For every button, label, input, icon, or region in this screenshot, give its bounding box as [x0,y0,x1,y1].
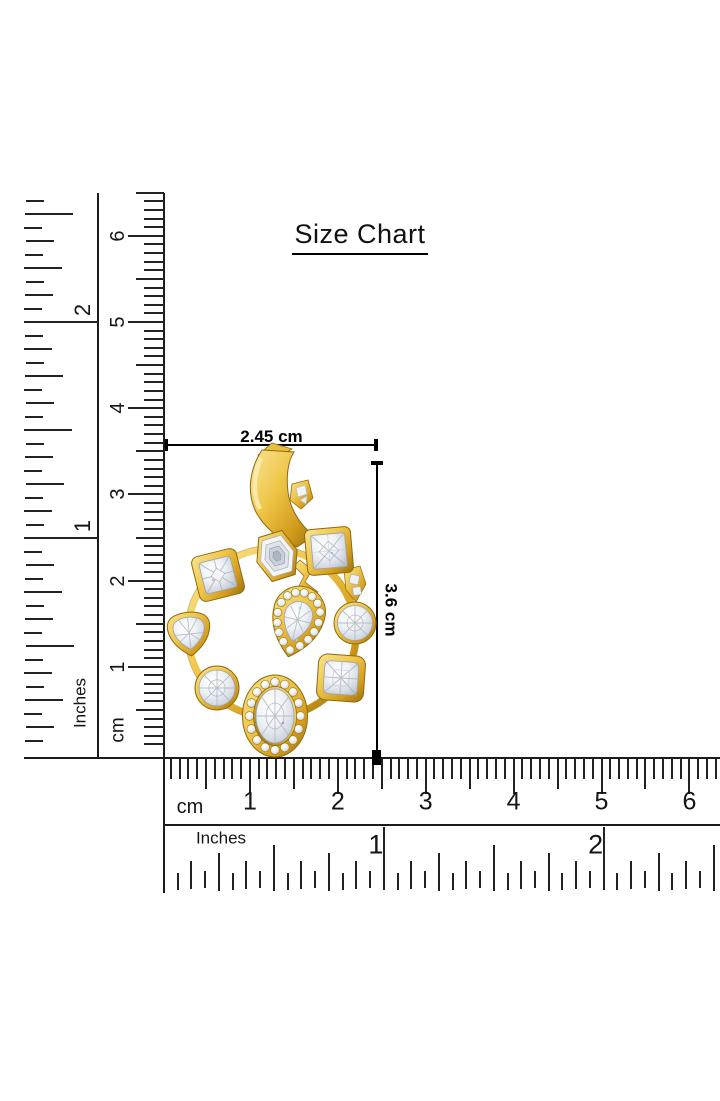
v-cm-number: 5 [108,316,128,327]
h-inches-tick [548,853,550,891]
v-cm-tick [128,321,164,323]
v-inches-tick [26,200,44,202]
h-cm-tick [310,759,312,779]
h-cm-tick [346,759,348,779]
v-cm-tick [144,252,164,254]
h-cm-tick [179,759,181,779]
h-cm-tick [258,759,260,779]
v-cm-tick [144,381,164,383]
v-inches-tick [24,632,42,634]
v-cm-tick [144,338,164,340]
v-cm-tick [144,373,164,375]
h-inches-number: 2 [588,832,603,859]
h-cm-tick [363,759,365,779]
v-cm-tick [144,226,164,228]
h-cm-number: 3 [419,790,433,815]
v-inches-tick [26,483,64,485]
h-inches-tick [452,873,454,890]
v-cm-tick [136,278,164,280]
h-cm-tick [662,759,664,779]
v-inches-tick [24,470,42,472]
v-inches-tick [25,740,43,742]
vertical-ruler-divider-line [97,193,99,758]
h-inches-tick [630,861,632,889]
h-inches-tick [410,861,412,889]
v-cm-number: 4 [108,403,128,414]
v-cm-tick [144,355,164,357]
v-inches-tick [25,659,43,661]
v-inches-tick [25,618,53,620]
h-cm-tick [302,759,304,779]
v-cm-tick [128,235,164,237]
h-cm-tick [574,759,576,779]
stone-pear-halo [263,581,331,663]
h-cm-tick [469,759,471,789]
h-cm-tick [548,759,550,779]
h-cm-tick [521,759,523,779]
h-inches-number: 1 [368,832,383,859]
h-inches-tick [314,871,316,888]
horizontal-cm-unit-label: cm [177,797,204,817]
h-inches-tick [685,861,687,889]
h-cm-tick [275,759,277,779]
h-cm-tick [187,759,189,779]
h-cm-tick [618,759,620,779]
stone-princess-bottom-right [316,653,366,702]
v-inches-tick [26,564,54,566]
h-cm-tick [442,759,444,779]
v-inches-tick [24,267,62,269]
h-cm-tick [715,759,717,779]
h-cm-tick [539,759,541,779]
v-cm-tick [144,424,164,426]
h-cm-tick [196,759,198,779]
h-cm-tick [398,759,400,779]
h-inches-tick [493,845,495,891]
h-cm-tick [530,759,532,779]
h-cm-tick [609,759,611,779]
h-cm-tick [671,759,673,779]
v-inches-tick [24,672,52,674]
h-inches-tick [369,871,371,888]
v-inches-tick [24,429,72,431]
stone-round-right [334,602,376,644]
v-cm-tick [144,347,164,349]
v-inches-number: 2 [72,304,94,316]
v-cm-tick [144,312,164,314]
h-cm-tick [583,759,585,779]
size-chart-image: Size Chart 12 123456 123456 12 Inches cm… [0,0,720,1101]
h-cm-tick [460,759,462,779]
h-inches-tick [397,873,399,890]
v-inches-tick [26,645,74,647]
h-inches-tick [507,873,509,890]
v-inches-tick [26,524,44,526]
v-inches-tick [24,227,42,229]
h-inches-tick [300,861,302,889]
v-cm-tick [144,330,164,332]
h-inches-tick [232,873,234,890]
h-cm-tick [390,759,392,779]
h-cm-tick [293,759,295,789]
h-cm-number: 1 [243,790,257,815]
h-inches-tick [671,873,673,890]
h-inches-tick [342,873,344,890]
h-cm-tick [328,759,330,779]
h-cm-number: 5 [595,790,609,815]
h-cm-tick [636,759,638,779]
h-cm-tick [565,759,567,779]
h-inches-tick [589,871,591,888]
v-cm-tick [136,192,164,194]
h-inches-tick [644,871,646,888]
h-cm-tick [231,759,233,779]
h-cm-tick [697,759,699,779]
h-cm-tick [416,759,418,779]
stone-trillion [166,610,213,658]
v-cm-tick [144,218,164,220]
v-cm-tick [144,209,164,211]
h-cm-tick [433,759,435,779]
h-cm-tick [504,759,506,779]
h-cm-tick [495,759,497,779]
h-cm-tick [653,759,655,779]
v-inches-number: 1 [72,520,94,532]
h-inches-tick [177,873,179,890]
v-cm-tick [144,416,164,418]
v-inches-tick [26,240,54,242]
h-cm-tick [592,759,594,779]
h-cm-tick [407,759,409,779]
vertical-inches-unit-label: Inches [72,678,89,728]
h-inches-tick [713,845,715,891]
v-inches-tick [25,578,43,580]
h-cm-tick [205,759,207,789]
h-cm-tick [644,759,646,789]
stone-round-bottom-left [195,666,239,710]
v-cm-number: 1 [108,661,128,672]
h-cm-tick [477,759,479,779]
v-inches-tick [25,213,73,215]
h-cm-tick [451,759,453,779]
v-cm-tick [128,407,164,409]
height-dimension-label: 3.6 cm [383,584,400,637]
h-inches-tick [616,873,618,890]
h-cm-tick [381,759,383,789]
v-cm-tick [144,399,164,401]
vertical-cm-unit-label: cm [109,717,128,742]
v-inches-tick [24,591,62,593]
h-inches-tick [534,871,536,888]
page-title: Size Chart [292,219,427,255]
v-inches-tick [25,699,63,701]
v-cm-tick [144,295,164,297]
v-cm-tick [144,287,164,289]
h-cm-tick [319,759,321,779]
h-cm-tick [266,759,268,779]
stone-princess-top-right [304,526,354,576]
h-inches-tick [438,853,440,891]
v-inches-tick [26,362,44,364]
h-cm-number: 2 [331,790,345,815]
h-cm-number: 4 [507,790,521,815]
h-cm-tick [706,759,708,779]
v-inches-tick [24,321,98,323]
h-inches-tick [699,871,701,888]
v-inches-tick [24,348,52,350]
v-cm-number: 2 [108,575,128,586]
product-image [158,440,384,762]
v-inches-tick [25,335,43,337]
h-inches-tick [575,861,577,889]
h-inches-tick [273,845,275,891]
bottom-ruler-divider-line [163,824,720,826]
h-inches-tick [328,853,330,891]
h-cm-tick [680,759,682,779]
v-inches-tick [24,308,42,310]
h-cm-tick [354,759,356,779]
v-inches-tick [26,686,44,688]
v-inches-tick [25,456,53,458]
v-cm-tick [144,243,164,245]
v-cm-number: 6 [108,230,128,241]
h-inches-tick [259,871,261,888]
h-inches-tick [479,871,481,888]
h-cm-tick [170,759,172,779]
h-cm-tick [223,759,225,779]
h-cm-tick [240,759,242,779]
v-inches-tick [24,713,42,715]
v-inches-tick [26,726,54,728]
v-cm-tick [144,390,164,392]
h-cm-tick [486,759,488,779]
v-inches-tick [24,510,52,512]
v-cm-number: 3 [108,489,128,500]
h-inches-tick [245,861,247,889]
stone-oval-halo [243,675,308,757]
v-inches-tick [25,416,43,418]
v-inches-tick [26,402,54,404]
h-cm-tick [627,759,629,779]
h-cm-tick [557,759,559,789]
v-cm-tick [144,261,164,263]
h-inches-tick [355,861,357,889]
v-inches-tick [24,389,42,391]
h-cm-tick [284,759,286,779]
h-inches-tick [658,853,660,891]
h-cm-number: 6 [682,790,696,815]
h-inches-tick [424,871,426,888]
v-inches-tick [26,443,44,445]
v-inches-tick [24,537,98,539]
v-inches-tick [25,254,43,256]
v-inches-tick [26,605,44,607]
v-cm-tick [144,433,164,435]
h-inches-tick [520,861,522,889]
v-inches-tick [25,497,43,499]
horizontal-inches-unit-label: Inches [196,830,246,847]
v-cm-tick [144,269,164,271]
v-inches-tick [26,281,44,283]
v-cm-tick [144,304,164,306]
h-inches-tick [218,853,220,891]
h-cm-tick [214,759,216,779]
h-inches-tick [465,861,467,889]
h-inches-tick [190,861,192,889]
h-inches-tick [561,873,563,890]
h-inches-tick [204,871,206,888]
v-inches-tick [25,294,53,296]
v-cm-tick [144,200,164,202]
v-inches-tick [25,375,63,377]
h-inches-tick [287,873,289,890]
v-inches-tick [24,551,42,553]
v-cm-tick [136,364,164,366]
